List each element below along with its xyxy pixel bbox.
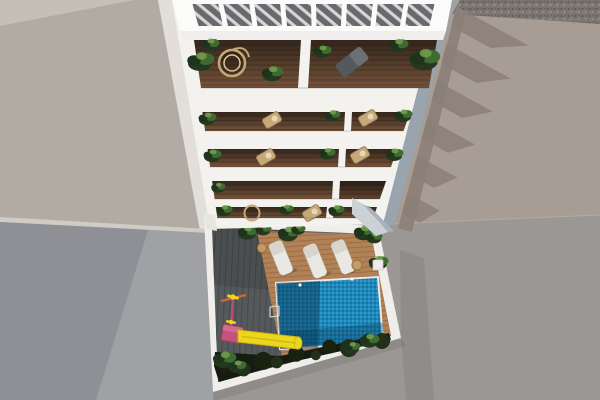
plant-leaf bbox=[235, 361, 242, 366]
potted-plant bbox=[373, 260, 383, 270]
hedge-bush bbox=[271, 356, 283, 368]
plant-leaf bbox=[205, 113, 212, 118]
plant-leaf bbox=[392, 149, 399, 154]
balcony-divider-wall bbox=[332, 181, 340, 199]
architectural-render bbox=[0, 0, 600, 400]
balcony-row bbox=[199, 109, 413, 131]
balcony-divider-wall bbox=[338, 149, 346, 167]
plant-leaf bbox=[350, 342, 356, 347]
render-canvas bbox=[0, 0, 600, 400]
plant-leaf bbox=[334, 205, 340, 210]
plant-leaf bbox=[395, 39, 403, 45]
plant-leaf bbox=[222, 205, 228, 210]
pergola-opening bbox=[223, 4, 252, 26]
plant-leaf bbox=[284, 205, 290, 209]
pergola-opening bbox=[316, 4, 342, 26]
plant-leaf bbox=[210, 150, 217, 155]
plant-leaf bbox=[325, 148, 331, 153]
side-table bbox=[352, 260, 362, 270]
side-table bbox=[258, 244, 267, 253]
plant-leaf bbox=[366, 334, 374, 340]
plant-leaf bbox=[216, 183, 222, 187]
plant-leaf bbox=[420, 49, 432, 58]
plant-leaf bbox=[221, 352, 230, 359]
hedge-bush bbox=[311, 350, 321, 360]
balcony-floor bbox=[202, 112, 410, 131]
rooftop-pergola bbox=[172, 0, 452, 40]
plant-leaf bbox=[208, 39, 215, 44]
pergola-opening bbox=[346, 4, 373, 26]
hedge-bush bbox=[254, 352, 272, 370]
balcony-shade bbox=[334, 181, 386, 199]
building-corner-pillar-sw bbox=[204, 213, 217, 231]
pergola-opening bbox=[254, 4, 282, 26]
plant-leaf bbox=[330, 110, 336, 115]
hedge-bush bbox=[322, 340, 336, 354]
pergola-opening bbox=[405, 4, 435, 26]
pool-light bbox=[350, 277, 353, 280]
plant-leaf bbox=[196, 52, 207, 60]
plant-leaf bbox=[269, 66, 277, 72]
pergola-opening bbox=[376, 4, 404, 26]
plant-leaf bbox=[320, 46, 327, 51]
balcony-divider-wall bbox=[344, 112, 352, 131]
pool-light bbox=[298, 283, 301, 286]
balcony-row bbox=[211, 181, 386, 199]
top-terrace bbox=[187, 39, 440, 89]
pergola-opening bbox=[285, 4, 311, 26]
pergola-front-face bbox=[180, 31, 446, 40]
plant-leaf bbox=[401, 110, 408, 115]
